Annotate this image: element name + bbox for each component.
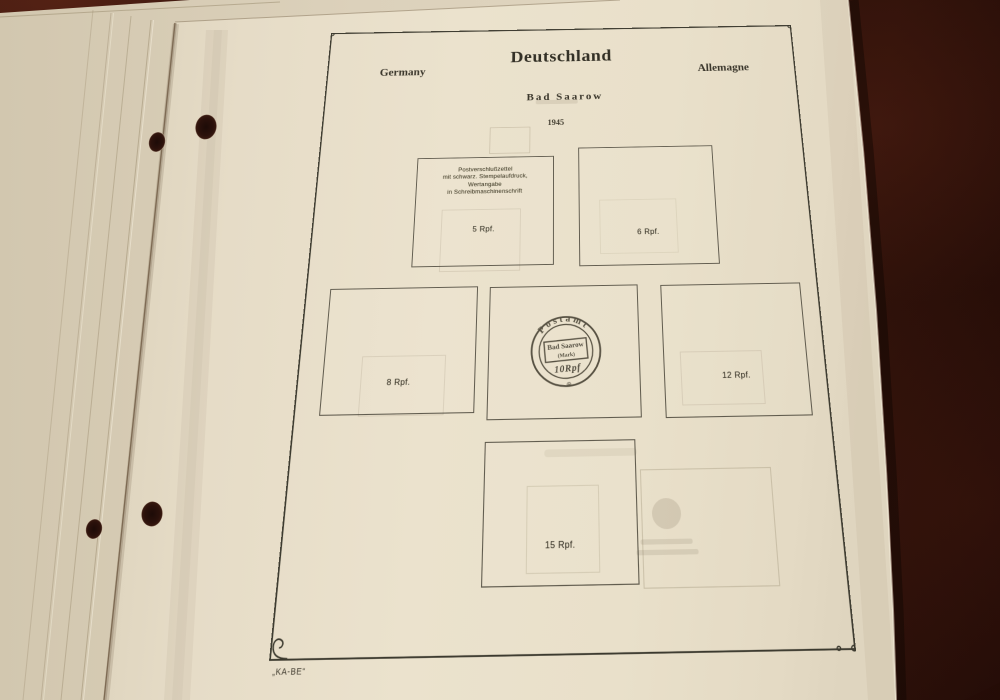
stamp-box-8rpf: 8 Rpf. (319, 286, 478, 416)
photo-scene: Deutschland Germany Allemagne Bad Saarow… (0, 0, 1000, 700)
country-label-french: Allemagne (669, 61, 778, 75)
stamp-value-5rpf: 5 Rpf. (414, 224, 553, 235)
stamp-value-15rpf: 15 Rpf. (483, 538, 637, 551)
postmark-region: (Mark) (557, 351, 575, 359)
stamp-description: Postverschlußzettel mit schwarz. Stempel… (418, 165, 551, 197)
show-through-ghost (651, 498, 681, 530)
postmark-value: 10Rpf (554, 361, 583, 375)
postmark-place: Bad Saarow (547, 341, 585, 352)
stamp-box-6rpf: 6 Rpf. (578, 145, 720, 266)
postmark-arc-label: Postamt (535, 310, 593, 336)
country-label-english: Germany (348, 66, 457, 80)
show-through-ghost (490, 127, 530, 153)
stamp-value-8rpf: 8 Rpf. (322, 376, 474, 388)
postmark-bottom-symbol: ⊕ (566, 381, 572, 389)
border-corner-curl (272, 639, 289, 659)
show-through-ghost (640, 539, 692, 545)
stamp-value-12rpf: 12 Rpf. (665, 369, 808, 381)
album-page: Deutschland Germany Allemagne Bad Saarow… (269, 25, 856, 661)
stamp-box-12rpf: 12 Rpf. (660, 282, 813, 418)
stamp-value-6rpf: 6 Rpf. (580, 226, 717, 237)
stamp-box-15rpf: 15 Rpf. (481, 439, 640, 587)
stamp-box-5rpf: Postverschlußzettel mit schwarz. Stempel… (411, 156, 554, 268)
show-through-ghost (636, 549, 698, 555)
postmark-illustration: Postamt Bad Saarow (Mark) 10Rpf ⊕ (523, 308, 609, 395)
stamp-box-10rpf-postmark: Postamt Bad Saarow (Mark) 10Rpf ⊕ (486, 284, 641, 420)
publisher-mark: „KA-BE“ (272, 667, 341, 677)
